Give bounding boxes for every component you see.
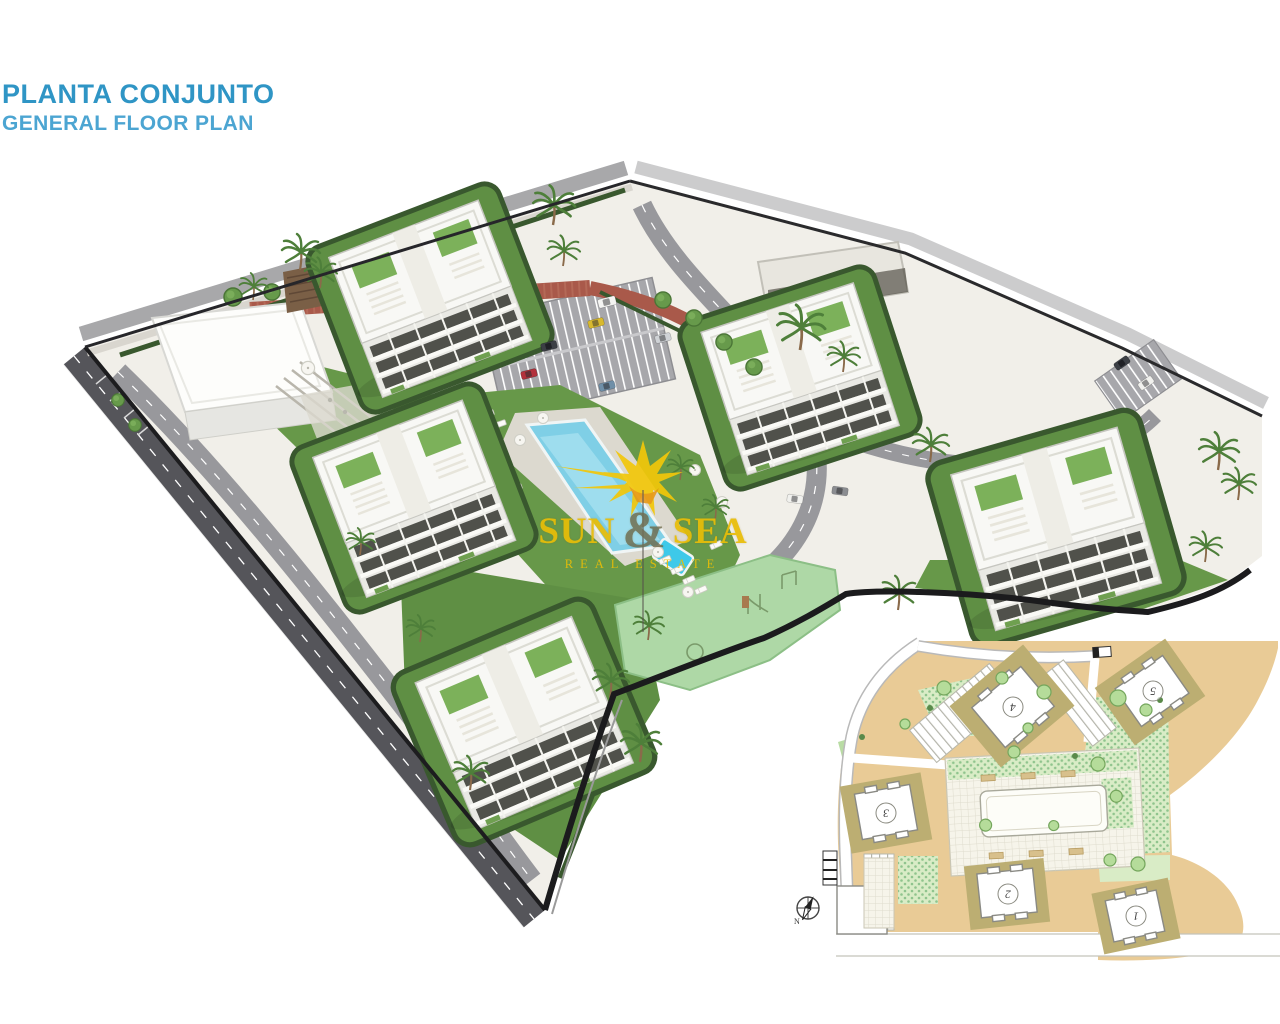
site-plan-inset (797, 639, 1280, 961)
plan-building-label-3: 3 (876, 803, 897, 824)
compass-icon (797, 895, 819, 921)
page-title: PLANTA CONJUNTO GENERAL FLOOR PLAN (2, 80, 275, 135)
aerial-render-illustration (0, 0, 1280, 1024)
plan-building-label-2: 2 (998, 884, 1019, 905)
plan-building-label-1: 1 (1126, 906, 1147, 927)
compass-north-label: N (794, 917, 800, 926)
plan-building-label-5: 5 (1143, 681, 1164, 702)
plan-building-label-4: 4 (1003, 697, 1024, 718)
title-english: GENERAL FLOOR PLAN (2, 112, 275, 135)
brochure-page: PLANTA CONJUNTO GENERAL FLOOR PLAN SUN &… (0, 0, 1280, 1024)
title-spanish: PLANTA CONJUNTO (2, 80, 275, 110)
